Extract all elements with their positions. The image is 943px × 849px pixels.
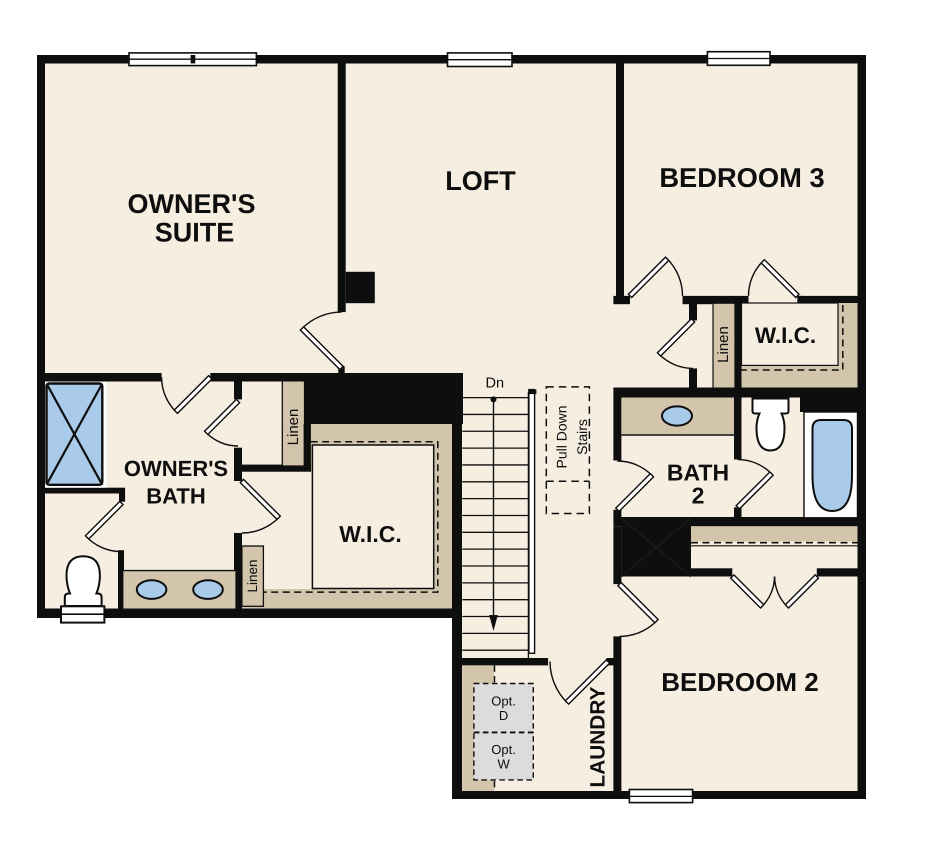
svg-text:OWNER'S: OWNER'S	[124, 456, 228, 481]
svg-text:Linen: Linen	[715, 326, 732, 363]
svg-text:BEDROOM 3: BEDROOM 3	[659, 162, 824, 193]
svg-text:BEDROOM 2: BEDROOM 2	[661, 667, 818, 697]
svg-text:SUITE: SUITE	[155, 217, 235, 247]
svg-text:OWNER'S: OWNER'S	[128, 189, 256, 219]
svg-text:2: 2	[692, 483, 705, 509]
svg-text:LAUNDRY: LAUNDRY	[586, 686, 609, 787]
svg-text:Pull Down: Pull Down	[553, 405, 569, 468]
svg-text:LOFT: LOFT	[445, 166, 516, 196]
svg-text:Opt.: Opt.	[491, 742, 516, 757]
svg-text:W: W	[497, 757, 510, 772]
svg-text:W.I.C.: W.I.C.	[755, 323, 816, 348]
svg-text:W.I.C.: W.I.C.	[339, 521, 402, 547]
svg-text:Opt.: Opt.	[491, 694, 516, 709]
svg-text:BATH: BATH	[146, 484, 205, 509]
svg-text:Linen: Linen	[245, 559, 260, 592]
svg-text:Stairs: Stairs	[574, 419, 590, 455]
svg-text:Linen: Linen	[285, 409, 302, 446]
svg-text:D: D	[499, 708, 508, 723]
svg-text:Dn: Dn	[486, 376, 505, 392]
